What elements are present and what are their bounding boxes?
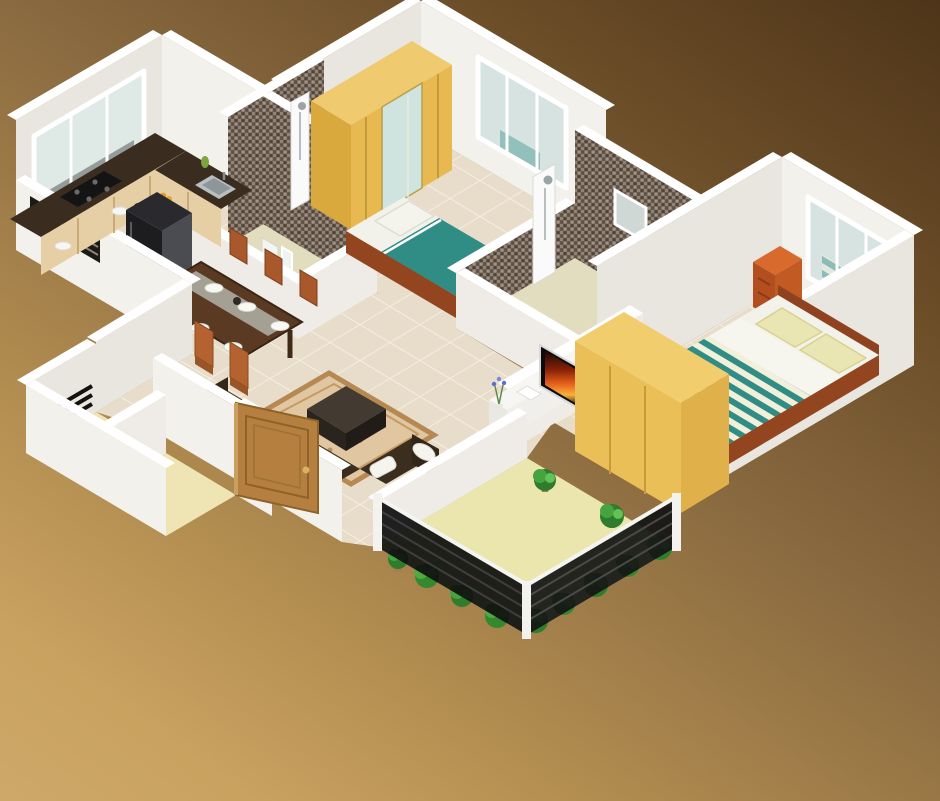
shower-panel-icon <box>291 92 309 210</box>
isometric-scene <box>0 0 940 801</box>
floor-plan-render <box>0 0 940 801</box>
shower-panel-icon <box>533 164 555 285</box>
entry-door <box>236 403 318 513</box>
door-knob-icon <box>303 467 310 474</box>
